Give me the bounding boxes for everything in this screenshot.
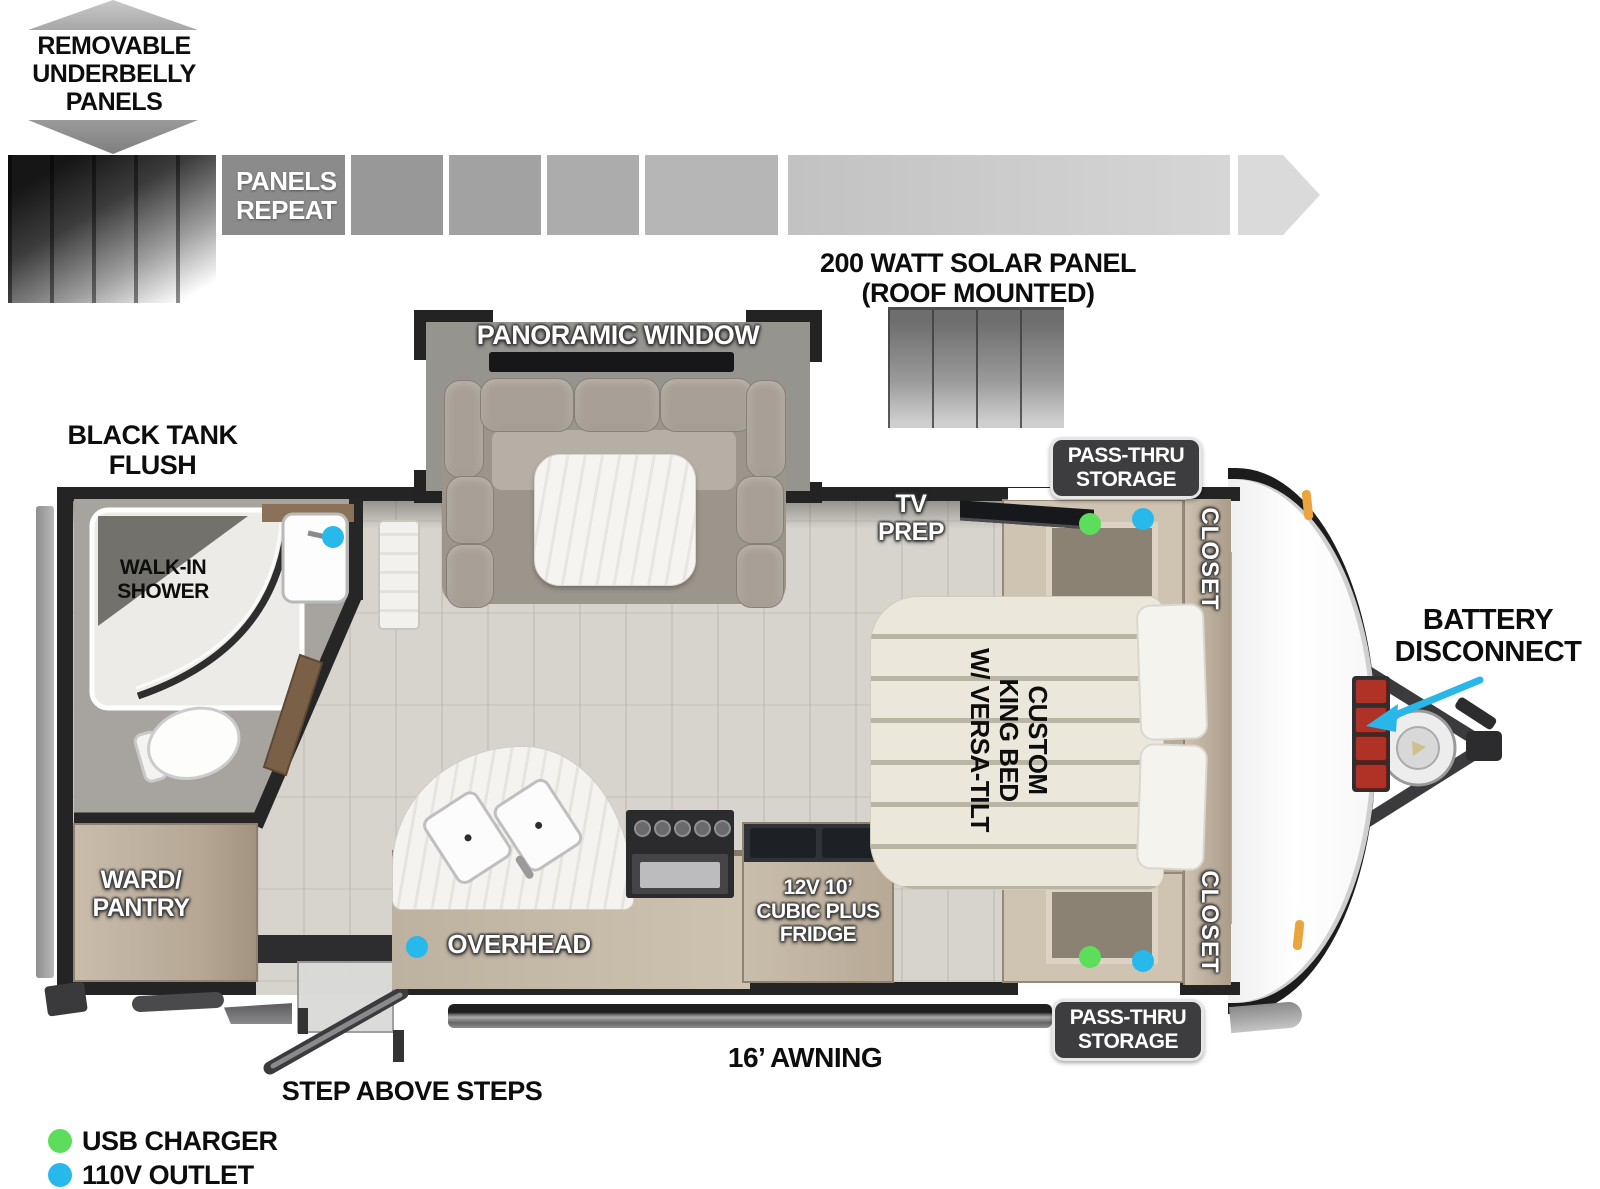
battery-cell [1355,764,1387,789]
dinette-table [534,454,696,586]
step-above-steps-label: STEP ABOVE STEPS [262,1076,562,1106]
slideout-window-gap [810,362,822,482]
black-tank-flush-label: BLACK TANK FLUSH [55,420,250,480]
sofa-cushion [444,380,484,478]
panels-repeat-label: PANELS REPEAT [236,167,336,225]
stove [626,810,734,898]
solar-panel-label: 200 WATT SOLAR PANEL (ROOF MOUNTED) [808,248,1148,308]
legend-outlet-label: 110V OUTLET [82,1160,342,1189]
underbelly-label: REMOVABLE UNDERBELLY PANELS [18,32,210,116]
tv-prep-label: TV PREP [852,490,970,546]
sofa-cushion [446,476,494,544]
legend-usb-label: USB CHARGER [82,1126,342,1156]
pass-thru-storage-badge-bottom: PASS-THRU STORAGE [1052,999,1204,1061]
underbelly-panels-photo [8,155,216,303]
cabinet-glass-door [1046,522,1158,602]
slideout-window-gap [414,360,426,470]
panels-repeat-segment [645,155,778,235]
sofa-cushion [736,476,784,544]
walk-in-shower-label: WALK-IN SHOWER [88,556,238,603]
sofa-cushion [574,378,660,432]
ward-pantry-label: WARD/ PANTRY [66,866,216,922]
side-table [378,520,420,630]
awning-rail [448,1004,1052,1028]
closet-top-label: CLOSET [1195,498,1222,620]
bed-pillow [1136,743,1208,871]
sofa-cushion [480,378,574,432]
bed-pillow [1136,603,1209,741]
panels-repeat-segment [351,155,443,235]
awning-label: 16’ AWNING [700,1042,910,1073]
oven-window [640,862,720,888]
110v-outlet-dot [406,936,428,958]
solar-panel-graphic [888,307,1064,428]
interior-step [258,935,400,963]
battery-disconnect-arrow-icon [1358,668,1488,738]
entry-steps [195,880,425,1080]
usb-charger-dot [1079,946,1101,968]
panoramic-window-label: PANORAMIC WINDOW [438,320,798,350]
sofa-cushion [736,544,784,608]
legend-usb-dot [48,1129,72,1153]
battery-cell [1355,736,1387,761]
usb-charger-dot [1079,513,1101,535]
battery-disconnect-label: BATTERY DISCONNECT [1372,604,1600,669]
legend-outlet-dot [48,1163,72,1187]
sofa-cushion [746,380,786,478]
fridge-label: 12V 10’ CUBIC PLUS FRIDGE [746,876,890,947]
sofa-cushion [660,378,754,432]
panels-repeat-arrow-icon [1238,155,1320,235]
closet-bottom-label: CLOSET [1195,860,1222,984]
panels-repeat-segment: PANELS REPEAT [222,155,345,235]
110v-outlet-dot [1132,950,1154,972]
110v-outlet-dot [322,526,344,548]
panels-repeat-segment [788,155,1230,235]
panels-repeat-segment [449,155,541,235]
overhead-label: OVERHEAD [430,930,608,959]
clearance-marker-light [1301,490,1313,521]
stabilizer-jack [44,981,88,1016]
panels-repeat-segment [547,155,639,235]
panoramic-window-glass [489,352,734,372]
sofa-cushion [446,544,494,608]
pass-thru-storage-badge-top: PASS-THRU STORAGE [1050,437,1202,499]
110v-outlet-dot [1132,508,1154,530]
floorplan-canvas: REMOVABLE UNDERBELLY PANELS PANELS REPEA… [0,0,1600,1189]
awning-arm [1229,1001,1303,1033]
bed-label: CUSTOM KING BED W/ VERSA-TILT [965,640,1052,840]
underbelly-down-arrow-icon [28,120,198,154]
pass-thru-door-band [1018,983,1180,995]
underbelly-up-arrow-icon [28,0,198,30]
rear-bumper [36,506,54,978]
